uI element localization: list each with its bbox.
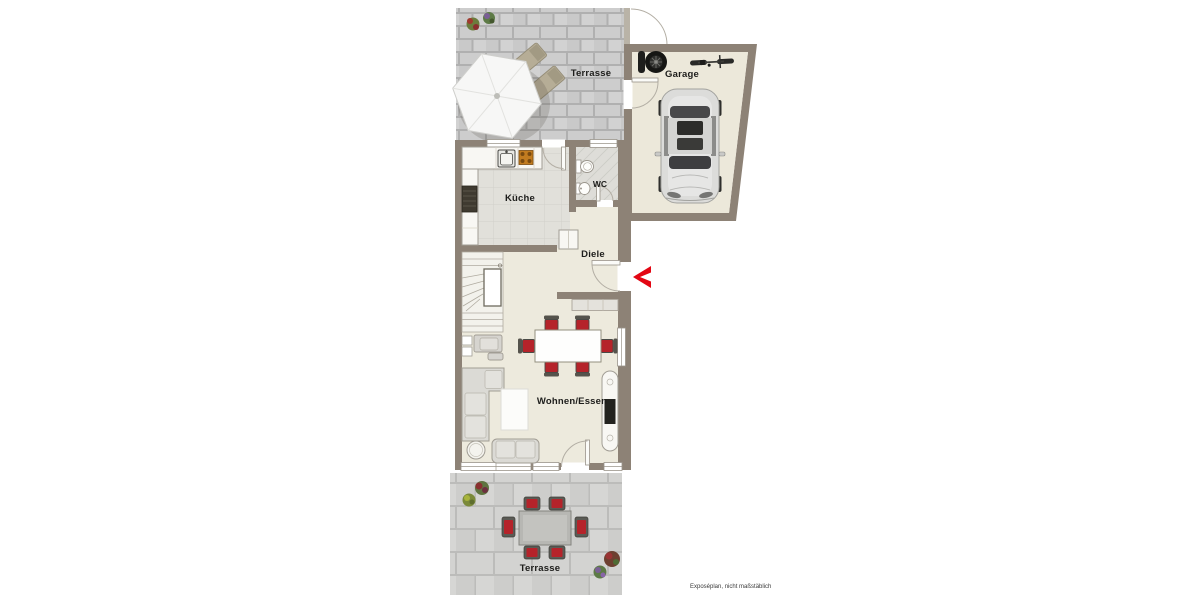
window xyxy=(604,463,622,471)
floorplan-canvas: Terrasse xyxy=(0,0,1200,600)
washbasin-icon xyxy=(576,183,590,195)
party-wall xyxy=(625,218,631,470)
entrance-arrow-icon xyxy=(633,266,651,288)
top-terrace-label: Terrasse xyxy=(571,68,612,79)
tv-board xyxy=(602,371,618,451)
flower-pot-icon xyxy=(475,481,489,495)
garden-wall xyxy=(624,8,630,46)
floorplan-svg: Terrasse xyxy=(0,0,1200,600)
outdoor-chair xyxy=(502,517,515,537)
outdoor-chair xyxy=(575,517,588,537)
sink-icon xyxy=(498,150,515,167)
living-dining-label: Wohnen/Essen xyxy=(537,396,607,407)
outdoor-table-top xyxy=(523,515,567,541)
wc-label: WC xyxy=(593,179,607,189)
bottom-terrace-label: Terrasse xyxy=(520,563,561,574)
flower-pot-icon xyxy=(463,494,476,507)
car-icon xyxy=(655,89,725,203)
plan-footnote: Exposéplan, nicht maßstäblich xyxy=(690,584,771,590)
hall-sideboard xyxy=(572,300,618,311)
rug xyxy=(501,389,528,430)
window xyxy=(487,140,520,148)
flower-pot-icon xyxy=(483,12,495,24)
outdoor-chair xyxy=(549,497,565,510)
window xyxy=(461,463,531,471)
toilet-icon xyxy=(576,160,594,173)
hall-partition xyxy=(557,292,631,299)
window xyxy=(533,463,559,471)
stove-icon xyxy=(519,151,533,165)
outdoor-chair xyxy=(524,546,540,559)
tires-icon xyxy=(638,51,667,73)
stair-partition xyxy=(455,245,557,252)
gate-swing-arc xyxy=(631,9,667,45)
kitchen-partition xyxy=(569,147,576,212)
hallway-label: Diele xyxy=(581,249,605,260)
flower-pot-icon xyxy=(467,18,480,31)
outdoor-chair xyxy=(524,497,540,510)
window xyxy=(590,140,617,148)
loveseat xyxy=(492,439,539,463)
bottom-terrace: Terrasse xyxy=(450,473,622,595)
staircase xyxy=(462,252,503,332)
garage-label: Garage xyxy=(665,69,699,80)
kitchen-label: Küche xyxy=(505,193,535,204)
window xyxy=(618,328,626,366)
flower-pot-icon xyxy=(594,566,607,579)
garage: Garage xyxy=(624,44,758,221)
house: Küche WC Diele xyxy=(455,140,632,471)
outdoor-chair xyxy=(549,546,565,559)
flower-pot-icon xyxy=(604,551,620,567)
dining-table xyxy=(535,330,601,362)
oven-icon xyxy=(462,186,477,212)
stair-newel xyxy=(484,269,501,306)
